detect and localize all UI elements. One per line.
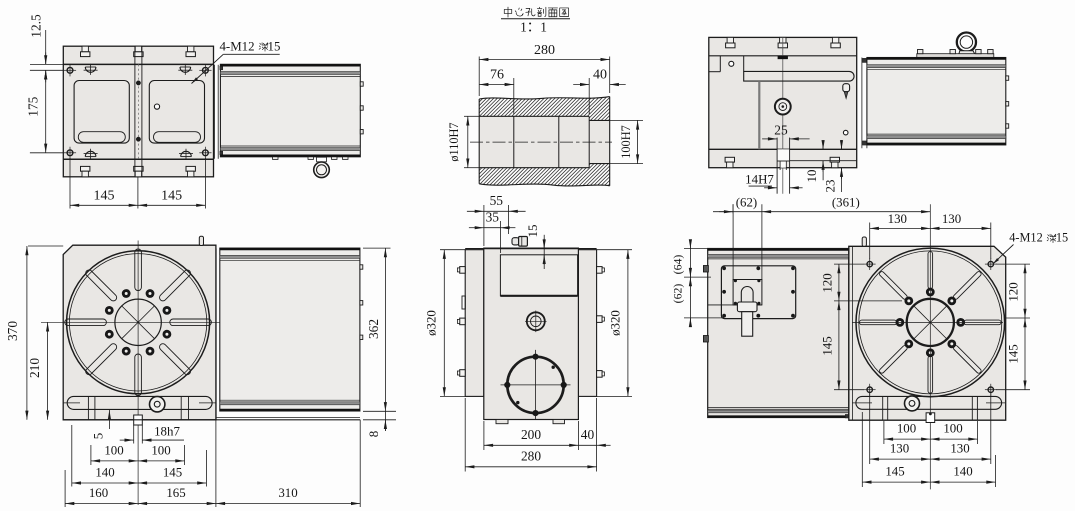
svg-text:145: 145	[161, 189, 182, 204]
svg-text:100: 100	[151, 444, 170, 458]
svg-text:15: 15	[268, 40, 281, 54]
svg-text:200: 200	[521, 427, 541, 442]
svg-text:370: 370	[5, 321, 20, 341]
svg-text:23: 23	[823, 180, 837, 193]
svg-text:120: 120	[820, 273, 834, 292]
svg-text:8: 8	[367, 431, 381, 437]
svg-text:(62): (62)	[671, 284, 685, 304]
svg-text:130: 130	[950, 442, 969, 456]
svg-text:100: 100	[104, 444, 123, 458]
svg-text:(64): (64)	[671, 255, 685, 275]
svg-text:ø110H7: ø110H7	[447, 122, 461, 161]
svg-text:130: 130	[890, 442, 909, 456]
svg-text:280: 280	[534, 43, 555, 58]
svg-text:145: 145	[163, 466, 182, 480]
svg-text:130: 130	[888, 212, 907, 226]
svg-text:362: 362	[366, 319, 381, 339]
svg-text:160: 160	[89, 486, 108, 500]
svg-text:5: 5	[92, 433, 106, 439]
svg-text:130: 130	[942, 212, 961, 226]
svg-text:10: 10	[805, 170, 819, 183]
svg-text:15: 15	[1056, 231, 1068, 245]
svg-text:55: 55	[490, 193, 504, 208]
svg-text:310: 310	[278, 486, 297, 500]
svg-text:ø320: ø320	[608, 310, 622, 336]
svg-text:165: 165	[166, 486, 185, 500]
svg-text:100: 100	[943, 422, 962, 436]
svg-text:(62): (62)	[736, 196, 757, 210]
svg-text:1：1: 1：1	[520, 20, 547, 35]
svg-text:145: 145	[94, 189, 115, 204]
svg-text:210: 210	[27, 358, 42, 378]
svg-text:145: 145	[820, 336, 834, 355]
svg-text:40: 40	[581, 427, 595, 442]
svg-text:ø320: ø320	[425, 310, 439, 336]
svg-text:280: 280	[521, 449, 541, 464]
svg-text:18h7: 18h7	[154, 425, 180, 439]
svg-text:12.5: 12.5	[29, 14, 44, 38]
svg-text:15: 15	[526, 225, 540, 238]
svg-text:145: 145	[1007, 344, 1021, 363]
svg-text:76: 76	[490, 68, 504, 83]
svg-text:25: 25	[774, 123, 788, 138]
svg-text:175: 175	[26, 96, 41, 116]
svg-text:120: 120	[1007, 282, 1021, 301]
svg-text:(361): (361)	[832, 196, 860, 210]
svg-text:145: 145	[885, 465, 904, 479]
svg-text:40: 40	[593, 68, 607, 83]
svg-text:4-M12: 4-M12	[219, 40, 254, 54]
svg-text:140: 140	[953, 465, 972, 479]
svg-text:140: 140	[95, 466, 114, 480]
svg-text:4-M12: 4-M12	[1009, 231, 1042, 245]
svg-text:35: 35	[486, 210, 500, 225]
svg-text:100: 100	[897, 422, 916, 436]
svg-text:100H7: 100H7	[619, 125, 633, 158]
svg-text:14H7: 14H7	[745, 173, 774, 187]
